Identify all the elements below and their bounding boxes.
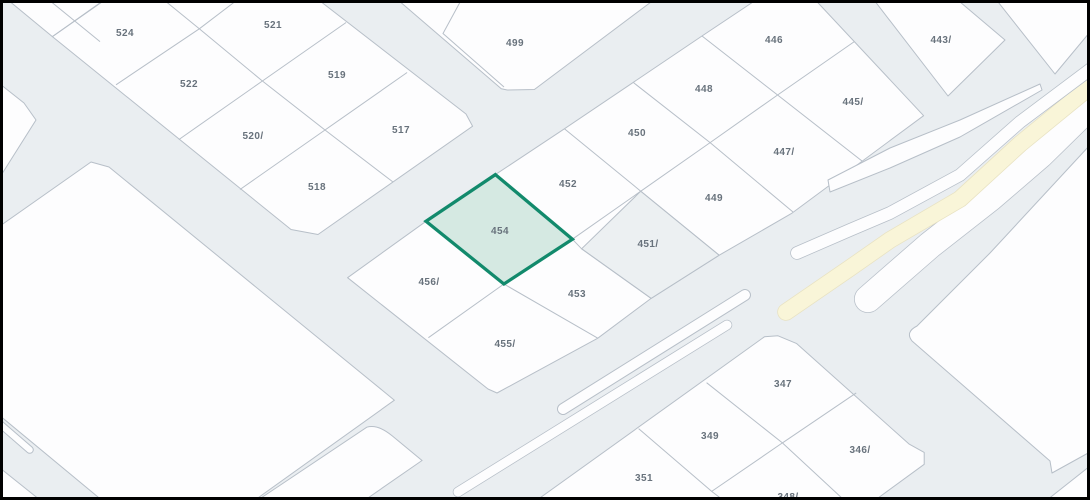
svg-text:443/: 443/: [930, 35, 951, 46]
svg-text:452: 452: [559, 179, 577, 190]
svg-text:349: 349: [701, 431, 719, 442]
svg-text:519: 519: [328, 70, 346, 81]
svg-text:351: 351: [635, 473, 653, 484]
svg-text:445/: 445/: [842, 97, 863, 108]
svg-text:447/: 447/: [773, 147, 794, 158]
svg-text:521: 521: [264, 20, 282, 31]
svg-text:524: 524: [116, 28, 134, 39]
svg-text:451/: 451/: [637, 239, 658, 250]
svg-text:449: 449: [705, 193, 723, 204]
svg-text:450: 450: [628, 128, 646, 139]
svg-text:446: 446: [765, 35, 783, 46]
svg-text:347: 347: [774, 379, 792, 390]
svg-text:499: 499: [506, 38, 524, 49]
svg-text:454: 454: [491, 226, 509, 237]
svg-text:346/: 346/: [849, 445, 870, 456]
svg-text:520/: 520/: [242, 131, 263, 142]
svg-text:448: 448: [695, 84, 713, 95]
svg-text:453: 453: [568, 289, 586, 300]
svg-text:517: 517: [392, 125, 410, 136]
svg-text:522: 522: [180, 79, 198, 90]
svg-text:456/: 456/: [418, 277, 439, 288]
svg-text:455/: 455/: [494, 339, 515, 350]
svg-text:518: 518: [308, 182, 326, 193]
